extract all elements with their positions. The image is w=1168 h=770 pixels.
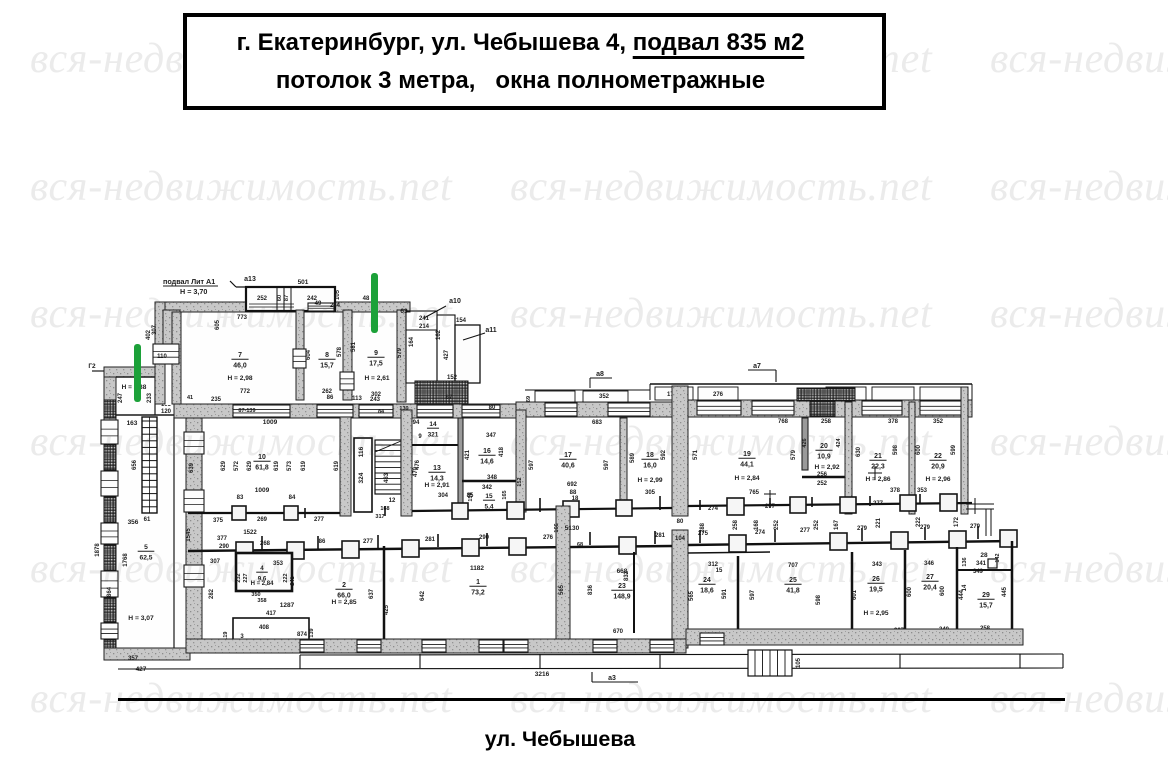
svg-text:139: 139 [309,628,315,637]
svg-text:252: 252 [817,481,828,487]
svg-text:Н = 2,85: Н = 2,85 [331,599,356,606]
svg-text:15,7: 15,7 [979,603,993,610]
svg-text:41: 41 [187,395,193,401]
svg-text:417: 417 [266,611,277,617]
svg-text:29: 29 [982,592,990,599]
svg-text:352: 352 [933,419,944,425]
svg-text:73,2: 73,2 [471,590,485,597]
svg-text:172: 172 [954,516,960,527]
svg-text:подвал Лит А1: подвал Лит А1 [163,277,215,286]
svg-text:425: 425 [384,604,390,615]
svg-text:352: 352 [599,394,610,400]
svg-text:252: 252 [814,519,820,530]
svg-text:269: 269 [257,517,268,523]
svg-text:277: 277 [873,501,884,507]
svg-text:598: 598 [816,594,822,605]
svg-text:7: 7 [238,352,242,359]
svg-text:274: 274 [755,530,766,536]
svg-text:221: 221 [876,517,882,528]
svg-text:604: 604 [306,349,312,360]
svg-text:9: 9 [374,350,378,357]
svg-text:а13: а13 [244,276,256,283]
svg-text:274: 274 [708,506,719,512]
svg-text:256: 256 [817,472,828,478]
svg-text:85: 85 [467,493,474,499]
svg-text:148,9: 148,9 [613,594,630,601]
svg-text:8: 8 [325,352,329,359]
svg-text:765: 765 [749,490,760,496]
svg-text:Н = 2,92: Н = 2,92 [814,464,839,471]
svg-text:235: 235 [211,397,222,403]
svg-text:46,0: 46,0 [233,363,247,370]
svg-text:69: 69 [526,396,532,402]
svg-text:874: 874 [297,632,308,638]
svg-text:358: 358 [257,598,266,604]
svg-text:233: 233 [147,392,153,403]
svg-text:277: 277 [314,517,325,523]
svg-text:324: 324 [358,472,365,483]
svg-text:Н = 2,99: Н = 2,99 [637,477,662,484]
svg-text:670: 670 [613,629,624,635]
svg-text:87-139: 87-139 [238,408,255,414]
svg-text:80: 80 [677,519,684,525]
svg-text:5130: 5130 [565,525,580,532]
svg-text:427: 427 [444,349,450,360]
svg-text:1182: 1182 [470,565,484,572]
svg-text:165: 165 [502,490,508,499]
svg-text:317: 317 [375,514,384,520]
svg-text:581: 581 [351,341,357,352]
svg-text:16: 16 [483,448,491,455]
svg-text:247: 247 [118,392,124,403]
svg-text:281: 281 [655,533,666,539]
svg-text:136: 136 [962,557,968,566]
svg-text:377: 377 [217,536,228,542]
svg-text:110: 110 [157,354,167,360]
svg-text:277: 277 [800,528,811,534]
svg-text:61,8: 61,8 [255,465,269,472]
svg-text:Г2: Г2 [88,363,96,370]
svg-text:а11: а11 [485,327,496,334]
svg-text:86: 86 [319,539,326,545]
svg-text:579: 579 [397,347,403,358]
svg-text:276: 276 [713,392,724,398]
svg-text:243: 243 [370,397,381,403]
svg-text:1545: 1545 [186,528,192,542]
svg-text:765: 765 [762,489,763,490]
svg-text:444: 444 [959,589,965,600]
svg-text:501: 501 [298,279,309,286]
svg-text:772: 772 [240,389,251,395]
svg-text:276: 276 [543,535,554,541]
svg-text:599: 599 [951,444,957,455]
svg-text:353: 353 [917,488,928,494]
svg-text:83: 83 [237,495,244,501]
svg-text:277: 277 [363,539,374,545]
svg-text:86: 86 [327,395,334,401]
svg-text:Н = 2,96: Н = 2,96 [925,476,950,483]
svg-text:1009: 1009 [255,487,270,494]
svg-text:342: 342 [482,485,493,491]
svg-text:258: 258 [733,519,739,530]
svg-text:88: 88 [570,490,577,496]
svg-text:20,9: 20,9 [931,464,945,471]
svg-text:281: 281 [425,537,436,543]
svg-text:357: 357 [128,656,139,662]
svg-text:341: 341 [976,561,987,567]
svg-text:13: 13 [433,465,441,472]
svg-text:305: 305 [645,490,656,496]
svg-text:28: 28 [980,552,988,559]
svg-text:87: 87 [446,395,453,401]
svg-text:12: 12 [389,498,396,504]
svg-text:113: 113 [352,396,362,402]
svg-text:80: 80 [489,405,496,411]
svg-text:421: 421 [465,449,471,460]
svg-text:Н = 2,98: Н = 2,98 [227,375,252,382]
svg-text:Н = 2,61: Н = 2,61 [364,375,389,382]
svg-text:22: 22 [934,453,942,460]
svg-text:578: 578 [337,346,343,357]
svg-text:356: 356 [128,519,139,526]
svg-text:279: 279 [970,524,981,530]
svg-text:Н = 3,07: Н = 3,07 [128,615,154,622]
svg-text:а7: а7 [753,363,761,370]
svg-text:375: 375 [213,518,224,524]
svg-text:84: 84 [289,495,296,501]
svg-text:1287: 1287 [280,602,295,609]
svg-text:418: 418 [499,446,505,457]
svg-text:408: 408 [259,625,270,631]
svg-text:1522: 1522 [243,530,257,536]
svg-text:105: 105 [796,657,802,668]
svg-text:483: 483 [384,472,390,483]
svg-text:347: 347 [486,433,497,439]
svg-text:а8: а8 [596,371,604,378]
svg-text:692: 692 [567,482,578,488]
svg-text:104: 104 [675,536,686,542]
svg-text:15: 15 [485,493,493,500]
svg-text:304: 304 [438,493,449,499]
svg-text:17,5: 17,5 [369,361,383,368]
svg-text:378: 378 [890,488,901,494]
svg-text:166: 166 [554,523,560,532]
svg-text:152: 152 [447,375,458,381]
svg-text:14,6: 14,6 [480,459,494,466]
svg-text:600: 600 [940,585,946,596]
svg-text:120: 120 [161,409,172,415]
svg-text:168: 168 [754,519,760,530]
svg-text:Н = 2,86: Н = 2,86 [865,476,890,483]
svg-text:15,7: 15,7 [320,363,334,370]
svg-text:Н = 2,84: Н = 2,84 [734,475,759,482]
svg-text:Н = 2,91: Н = 2,91 [424,482,449,489]
svg-text:152: 152 [517,477,523,486]
svg-text:167: 167 [834,519,840,530]
svg-text:290: 290 [479,535,490,541]
svg-text:252: 252 [774,519,780,530]
svg-text:Н = 2,95: Н = 2,95 [863,610,888,617]
svg-text:348: 348 [487,475,498,481]
svg-text:84: 84 [378,409,385,415]
svg-text:154: 154 [456,318,467,324]
svg-text:61: 61 [144,517,151,523]
svg-text:164: 164 [409,336,415,347]
svg-text:1: 1 [476,579,480,586]
